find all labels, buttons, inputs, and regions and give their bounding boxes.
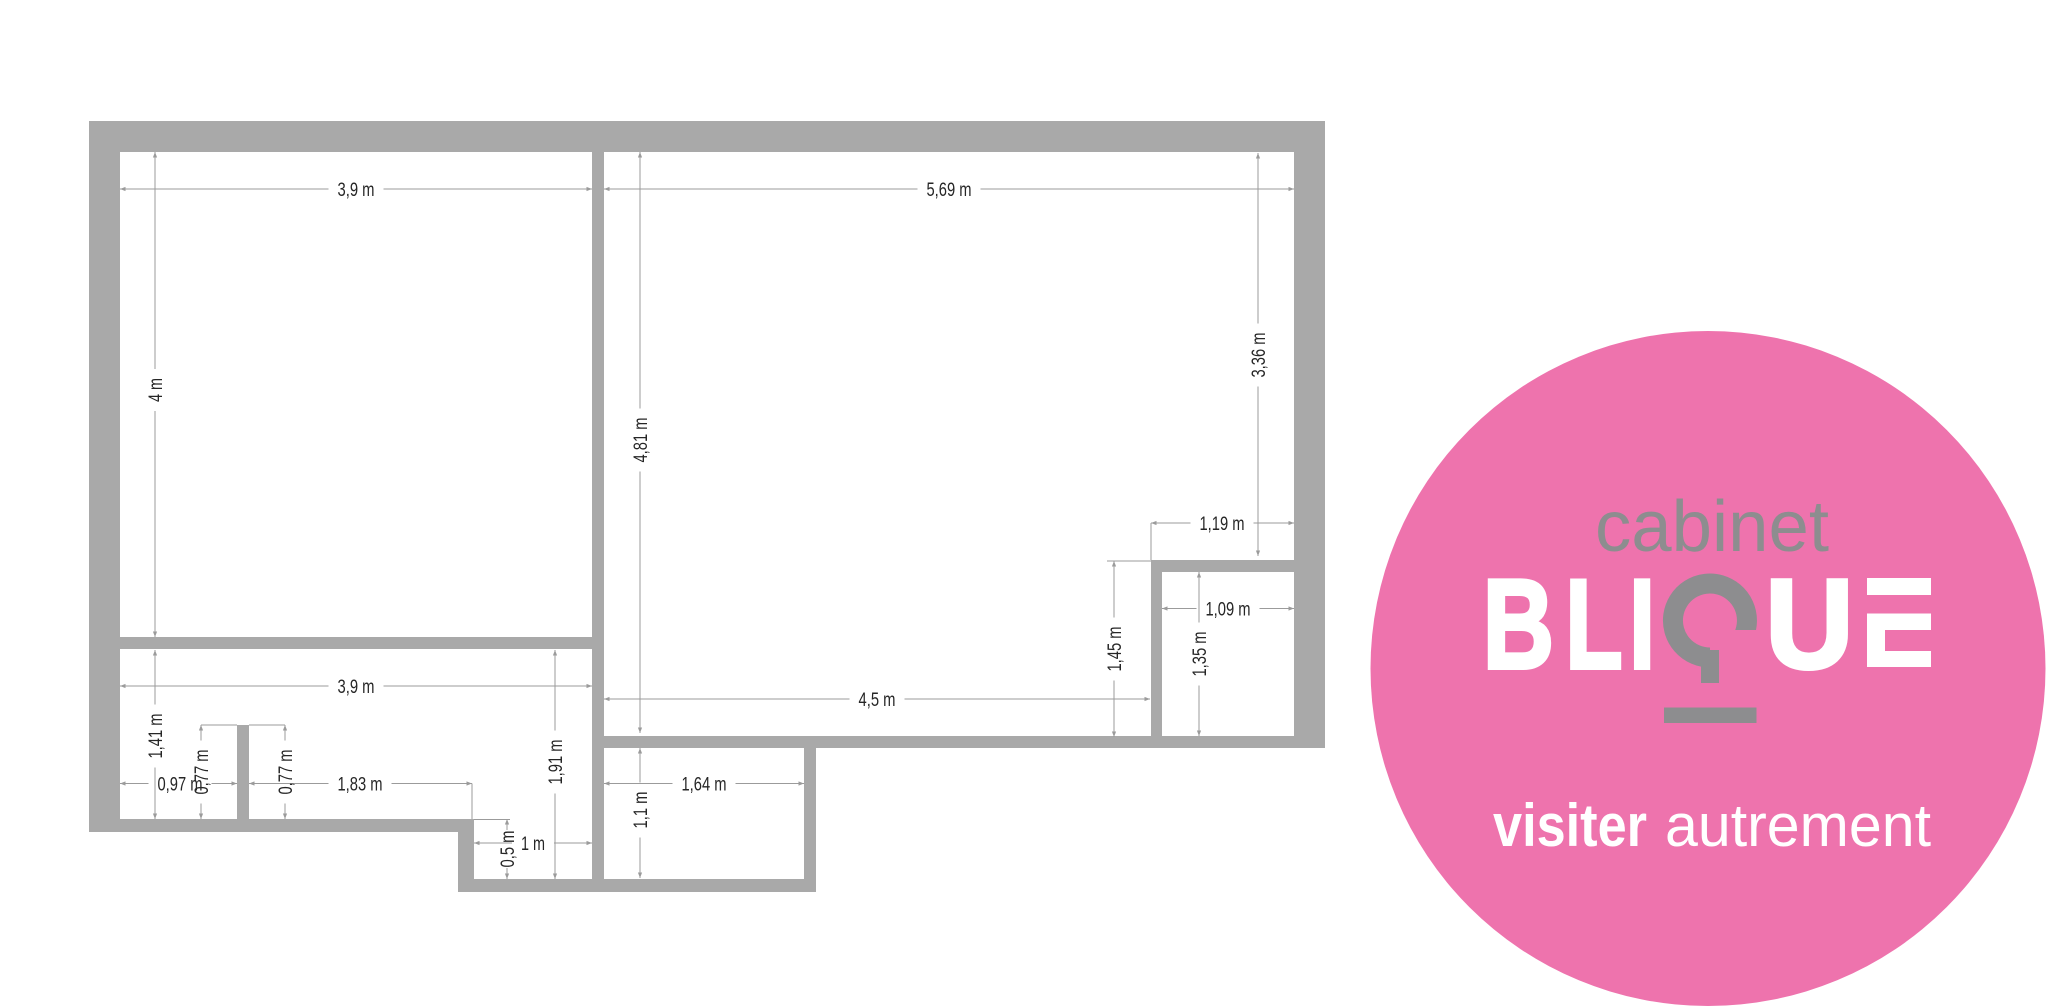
- svg-text:3,9 m: 3,9 m: [338, 180, 375, 201]
- svg-text:visiter: visiter: [1493, 792, 1647, 859]
- svg-text:1,91 m: 1,91 m: [546, 740, 567, 785]
- svg-text:0,5 m: 0,5 m: [498, 831, 519, 868]
- svg-text:4,5 m: 4,5 m: [859, 690, 896, 711]
- svg-text:0,77 m: 0,77 m: [192, 750, 213, 795]
- svg-text:1 m: 1 m: [521, 834, 545, 855]
- svg-text:4,81 m: 4,81 m: [631, 418, 652, 463]
- svg-text:5,69 m: 5,69 m: [927, 180, 972, 201]
- svg-text:1,09 m: 1,09 m: [1206, 599, 1251, 620]
- svg-text:4 m: 4 m: [146, 378, 167, 402]
- svg-text:L: L: [1565, 553, 1622, 695]
- svg-text:1,41 m: 1,41 m: [146, 714, 167, 759]
- svg-text:0,77 m: 0,77 m: [276, 750, 297, 795]
- svg-text:U: U: [1765, 553, 1853, 695]
- svg-text:B: B: [1483, 553, 1554, 695]
- svg-text:autrement: autrement: [1665, 792, 1931, 859]
- svg-text:3,36 m: 3,36 m: [1249, 333, 1270, 378]
- svg-text:1,45 m: 1,45 m: [1105, 627, 1126, 672]
- svg-text:1,19 m: 1,19 m: [1200, 514, 1245, 535]
- svg-text:I: I: [1629, 553, 1655, 695]
- svg-text:1,64 m: 1,64 m: [682, 774, 727, 795]
- svg-text:1,35 m: 1,35 m: [1190, 632, 1211, 677]
- svg-text:3,9 m: 3,9 m: [338, 677, 375, 698]
- svg-text:1,1 m: 1,1 m: [631, 792, 652, 829]
- svg-text:1,83 m: 1,83 m: [338, 774, 383, 795]
